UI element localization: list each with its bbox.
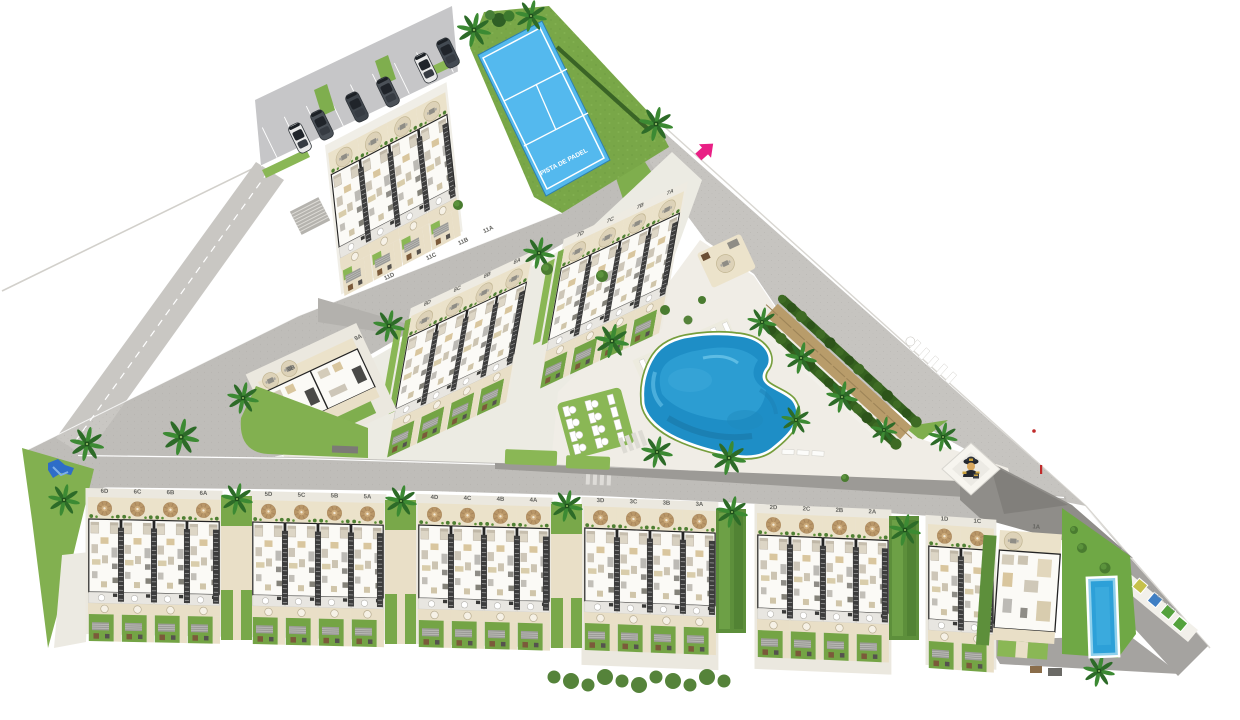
svg-text:1A: 1A: [1032, 524, 1041, 531]
svg-text:4C: 4C: [464, 496, 472, 502]
svg-text:2C: 2C: [803, 506, 811, 512]
svg-text:2B: 2B: [836, 508, 844, 514]
svg-text:3A: 3A: [696, 502, 704, 508]
svg-text:5B: 5B: [331, 493, 339, 499]
svg-text:2D: 2D: [770, 505, 778, 511]
svg-text:5A: 5A: [364, 494, 372, 500]
svg-text:4B: 4B: [497, 497, 505, 503]
svg-text:4D: 4D: [431, 495, 439, 501]
svg-text:6C: 6C: [134, 489, 142, 495]
svg-text:1C: 1C: [974, 519, 982, 526]
svg-text:3B: 3B: [663, 501, 671, 507]
svg-text:5D: 5D: [265, 492, 273, 498]
svg-text:6D: 6D: [101, 489, 109, 495]
svg-text:6B: 6B: [167, 490, 175, 496]
svg-text:5C: 5C: [298, 493, 306, 499]
svg-text:1D: 1D: [941, 516, 949, 523]
svg-text:2A: 2A: [869, 509, 877, 515]
svg-text:3D: 3D: [597, 498, 605, 504]
svg-text:3C: 3C: [630, 499, 638, 505]
svg-text:6A: 6A: [200, 491, 208, 497]
svg-text:4A: 4A: [530, 498, 538, 504]
